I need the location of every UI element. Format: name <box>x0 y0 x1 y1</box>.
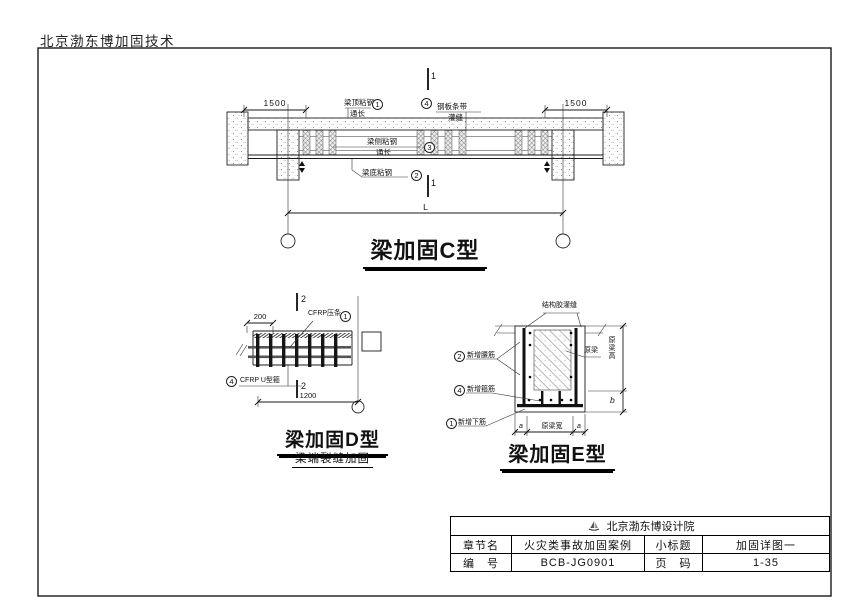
c-label3-line1: 梁侧粘钢 <box>367 138 397 147</box>
page-value: 1-35 <box>702 554 829 571</box>
e-dim-a-left: a <box>515 423 527 431</box>
chapter-name-value: 火灾类事故加固案例 <box>511 536 644 553</box>
e-dim-a-right: a <box>573 423 585 431</box>
page-key: 页 码 <box>644 554 702 571</box>
c-section-mark-top: 1 <box>431 71 436 81</box>
c-label3-number: 3 <box>424 142 435 153</box>
e-dim-height-label: 原梁高 <box>607 336 615 378</box>
d-label4-number: 4 <box>226 376 237 387</box>
design-institute-name: 北京渤东博设计院 <box>607 518 695 534</box>
e-label4-text: 新增箍筋 <box>467 386 495 394</box>
title-block-row2: 章节名 火灾类事故加固案例 小标题 加固详图一 <box>451 536 829 554</box>
d-label1-number: 1 <box>340 311 351 322</box>
page-header-company: 北京渤东博加固技术 <box>40 30 175 50</box>
d-dim-top: 200 <box>247 313 273 322</box>
e-label-adhesive: 结构胶灌缝 <box>542 302 577 310</box>
title-block-row3: 编 号 BCB-JG0901 页 码 1-35 <box>451 554 829 571</box>
c-dim-right: 1500 <box>545 99 607 108</box>
c-label1-line2: 通长 <box>350 110 365 119</box>
c-section-mark-bottom: 1 <box>431 178 436 188</box>
d-section-mark-bottom: 2 <box>301 381 306 391</box>
e-dim-width-label: 原梁宽 <box>531 423 573 431</box>
e-dim-b: b <box>610 396 615 405</box>
chapter-name-key: 章节名 <box>451 536 511 553</box>
d-label4-text: CFRP U型箍 <box>240 377 280 385</box>
d-section-mark-top: 2 <box>301 294 306 304</box>
d-drawing-subtitle-text: 梁端裂缝加固 <box>292 450 373 468</box>
subtitle-key: 小标题 <box>644 536 702 553</box>
d-label1-text: CFRP压条 <box>308 310 341 318</box>
c-label4-line1: 钢板条带 <box>437 103 467 112</box>
title-block-company-row: 北京渤东博设计院 <box>451 517 829 536</box>
e-drawing-title: 梁加固E型 <box>495 438 620 471</box>
c-drawing-title-text: 梁加固C型 <box>363 233 488 269</box>
c-dim-left: 1500 <box>244 99 306 108</box>
e-label2-number: 2 <box>454 351 465 362</box>
number-value: BCB-JG0901 <box>511 554 644 571</box>
number-key: 编 号 <box>451 554 511 571</box>
c-label2-line1: 梁底粘钢 <box>362 169 392 178</box>
company-logo-icon <box>586 520 602 532</box>
c-label4-number: 4 <box>421 98 432 109</box>
c-label2-number: 2 <box>411 170 422 181</box>
c-label4-line2: 灌缝 <box>448 114 463 123</box>
e-label4-number: 4 <box>454 385 465 396</box>
c-label3-line2: 通长 <box>376 149 391 158</box>
e-label2-text: 新增腰筋 <box>467 352 495 360</box>
d-dim-bottom: 1200 <box>258 392 358 401</box>
c-label1-line1: 梁顶粘钢 <box>344 99 374 108</box>
c-drawing-title: 梁加固C型 <box>340 233 510 269</box>
c-label1-number: 1 <box>372 99 383 110</box>
e-label-original-beam: 原梁 <box>584 347 598 355</box>
e-label1-number: 1 <box>446 418 457 429</box>
d-drawing-subtitle: 梁端裂缝加固 <box>270 450 395 468</box>
c-dim-span: L <box>288 203 563 212</box>
e-drawing-title-text: 梁加固E型 <box>500 438 614 471</box>
title-block: 北京渤东博设计院 章节名 火灾类事故加固案例 小标题 加固详图一 编 号 BCB… <box>450 516 830 572</box>
e-label1-text: 新增下筋 <box>458 419 486 427</box>
drawing-sheet: 北京渤东博加固技术 1 1 1500 1500 L 梁顶粘钢 1 通长 4 钢板… <box>0 0 863 609</box>
subtitle-value: 加固详图一 <box>702 536 829 553</box>
